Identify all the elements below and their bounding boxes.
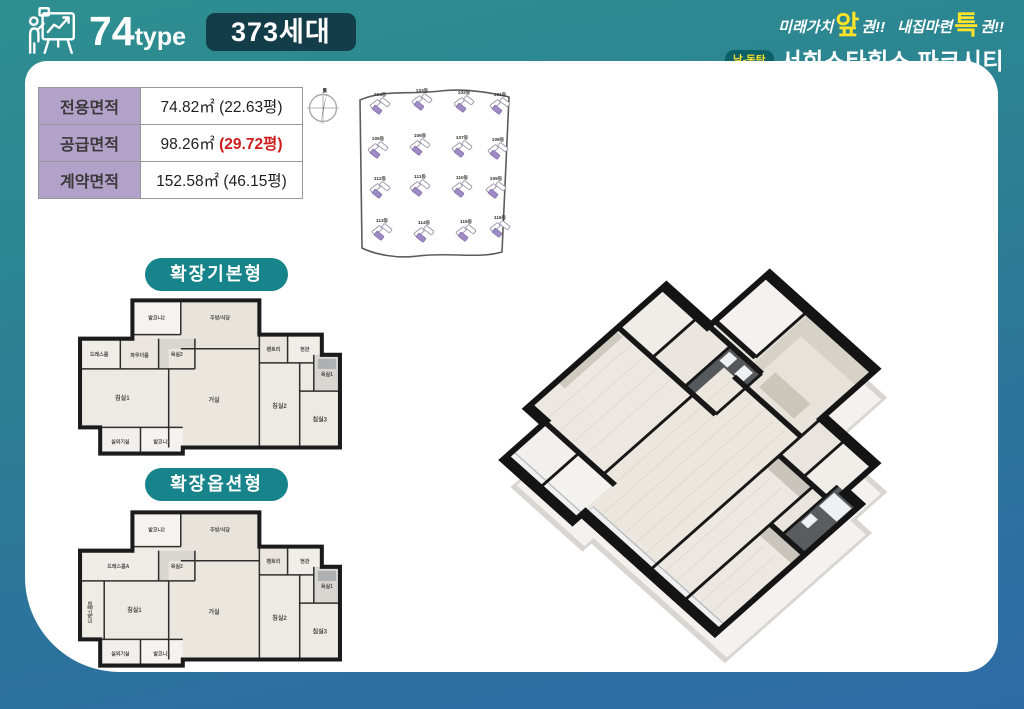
svg-text:파우더룸: 파우더룸 bbox=[130, 352, 149, 359]
svg-text:침실2: 침실2 bbox=[272, 402, 287, 410]
svg-text:발코니2: 발코니2 bbox=[148, 527, 165, 534]
header-left: 74type bbox=[26, 4, 186, 58]
svg-text:팬트리: 팬트리 bbox=[267, 346, 281, 353]
svg-text:팬트리: 팬트리 bbox=[267, 558, 281, 565]
svg-text:실외기실: 실외기실 bbox=[111, 650, 130, 657]
svg-text:113동: 113동 bbox=[376, 217, 389, 224]
area-label: 전용면적 bbox=[39, 88, 141, 125]
presentation-chart-icon bbox=[26, 4, 80, 58]
svg-text:주방/식당: 주방/식당 bbox=[210, 527, 230, 534]
svg-text:110동: 110동 bbox=[456, 174, 469, 181]
svg-text:108동: 108동 bbox=[492, 136, 505, 143]
area-table: 전용면적 74.82㎡ (22.63평) 공급면적 98.26㎡ (29.72평… bbox=[38, 87, 303, 199]
isometric-floorplan bbox=[408, 203, 993, 668]
svg-text:드레스룸: 드레스룸 bbox=[90, 351, 109, 358]
svg-text:105동: 105동 bbox=[372, 135, 385, 142]
tagline-big1: 앞 bbox=[835, 10, 859, 40]
type-number: 74 bbox=[89, 8, 135, 54]
svg-text:발코니1: 발코니1 bbox=[153, 438, 170, 445]
floorplan-basic: 발코니2 주방/식당 드레스룸 파우더룸 욕실2 팬트리 현관 욕실1 침실1 … bbox=[76, 298, 344, 460]
area-value: 74.82㎡ (22.63평) bbox=[141, 88, 303, 125]
units-badge: 373세대 bbox=[206, 13, 356, 51]
highlighted-pyeong: (29.72평) bbox=[219, 136, 282, 153]
table-row: 공급면적 98.26㎡ (29.72평) bbox=[39, 125, 303, 162]
svg-text:106동: 106동 bbox=[414, 132, 427, 139]
svg-text:102동: 102동 bbox=[458, 89, 471, 96]
svg-text:주방/식당: 주방/식당 bbox=[210, 315, 230, 322]
svg-text:침실1: 침실1 bbox=[115, 394, 130, 402]
table-row: 계약면적 152.58㎡ (46.15평) bbox=[39, 162, 303, 199]
svg-text:침실3: 침실3 bbox=[313, 415, 328, 423]
svg-text:욕실2: 욕실2 bbox=[171, 563, 183, 570]
svg-text:욕실1: 욕실1 bbox=[321, 583, 333, 590]
svg-text:거실: 거실 bbox=[208, 608, 220, 616]
tagline-big2: 특 bbox=[954, 10, 978, 40]
type-suffix: type bbox=[135, 23, 186, 51]
page-title: 74type bbox=[89, 8, 186, 55]
area-label: 계약면적 bbox=[39, 162, 141, 199]
svg-text:드레스룸B: 드레스룸B bbox=[87, 601, 94, 623]
tagline-post1: 권!! bbox=[861, 19, 885, 36]
svg-text:112동: 112동 bbox=[374, 175, 387, 182]
compass-icon bbox=[300, 84, 346, 130]
svg-text:발코니1: 발코니1 bbox=[153, 650, 170, 657]
svg-text:침실3: 침실3 bbox=[313, 627, 328, 635]
svg-text:107동: 107동 bbox=[456, 134, 469, 141]
svg-text:111동: 111동 bbox=[414, 173, 426, 180]
floorplan-option: 발코니2 주방/식당 드레스룸A 욕실2 팬트리 현관 욕실1 드레스룸B 침실… bbox=[76, 506, 344, 676]
area-label: 공급면적 bbox=[39, 125, 141, 162]
tagline-pre1: 미래가치 bbox=[778, 19, 833, 36]
svg-text:발코니2: 발코니2 bbox=[148, 315, 165, 322]
svg-text:101동: 101동 bbox=[494, 91, 507, 98]
svg-text:욕실1: 욕실1 bbox=[321, 371, 333, 378]
svg-text:침실2: 침실2 bbox=[272, 614, 287, 622]
plan-1-title-pill: 확장기본형 bbox=[145, 258, 288, 291]
brochure-page: 74type 373세대 미래가치앞권!!내집마련특권!! 남-동탄 서희스타힐… bbox=[0, 0, 1024, 709]
svg-text:103동: 103동 bbox=[416, 87, 429, 94]
svg-text:현관: 현관 bbox=[300, 346, 310, 353]
plan-2-title-pill: 확장옵션형 bbox=[145, 468, 288, 501]
svg-text:거실: 거실 bbox=[208, 396, 220, 404]
table-row: 전용면적 74.82㎡ (22.63평) bbox=[39, 88, 303, 125]
content-card: 전용면적 74.82㎡ (22.63평) 공급면적 98.26㎡ (29.72평… bbox=[25, 61, 998, 672]
svg-text:109동: 109동 bbox=[490, 175, 503, 182]
tagline-post2: 권!! bbox=[980, 19, 1004, 36]
tagline-pre2: 내집마련 bbox=[897, 19, 952, 36]
svg-text:침실1: 침실1 bbox=[127, 606, 142, 614]
area-value: 98.26㎡ (29.72평) bbox=[141, 125, 303, 162]
svg-text:드레스룸A: 드레스룸A bbox=[107, 563, 129, 570]
svg-text:현관: 현관 bbox=[300, 558, 310, 565]
tagline: 미래가치앞권!!내집마련특권!! bbox=[725, 5, 1004, 42]
svg-text:실외기실: 실외기실 bbox=[111, 438, 130, 445]
svg-text:욕실2: 욕실2 bbox=[171, 351, 183, 358]
area-value: 152.58㎡ (46.15평) bbox=[141, 162, 303, 199]
svg-text:104동: 104동 bbox=[374, 91, 387, 98]
